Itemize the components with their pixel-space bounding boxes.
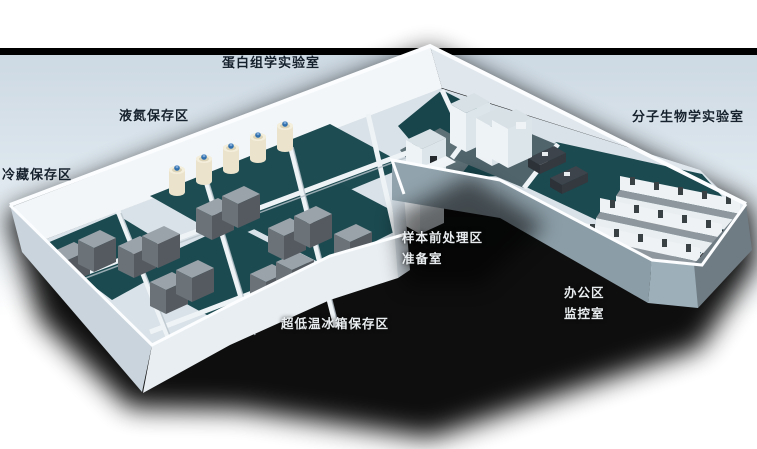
- label-ult-freezer-area: 超低温冰箱保存区: [281, 318, 389, 331]
- label-cold-storage-area: 冷藏保存区: [2, 169, 72, 182]
- wall-front-right-corner: [648, 260, 702, 308]
- label-liquid-nitrogen-area: 液氮保存区: [119, 110, 189, 123]
- label-preparation-room: 准备室: [402, 253, 443, 266]
- label-office-area: 办公区: [564, 287, 605, 300]
- label-monitoring-room: 监控室: [564, 308, 605, 321]
- lab-3d-scene: [0, 0, 757, 449]
- label-proteomics-lab: 蛋白组学实验室: [222, 57, 320, 70]
- top-black-band: [0, 48, 757, 55]
- label-molecular-biology-lab: 分子生物学实验室: [632, 111, 744, 124]
- label-sample-pretreatment: 样本前处理区: [402, 232, 483, 245]
- lab-floorplan-render: 蛋白组学实验室 液氮保存区 冷藏保存区 分子生物学实验室 样本前处理区 准备室 …: [0, 0, 757, 449]
